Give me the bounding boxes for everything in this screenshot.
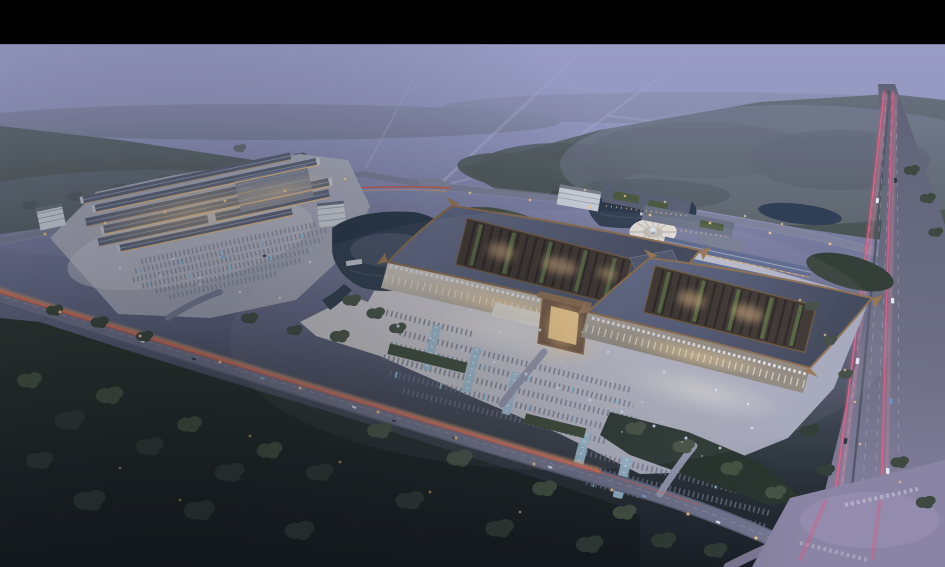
letterbox-bar-top: [0, 0, 945, 44]
rendering-stage: [0, 0, 945, 567]
color-cast: [0, 44, 945, 567]
aerial-rendering: [0, 0, 945, 567]
